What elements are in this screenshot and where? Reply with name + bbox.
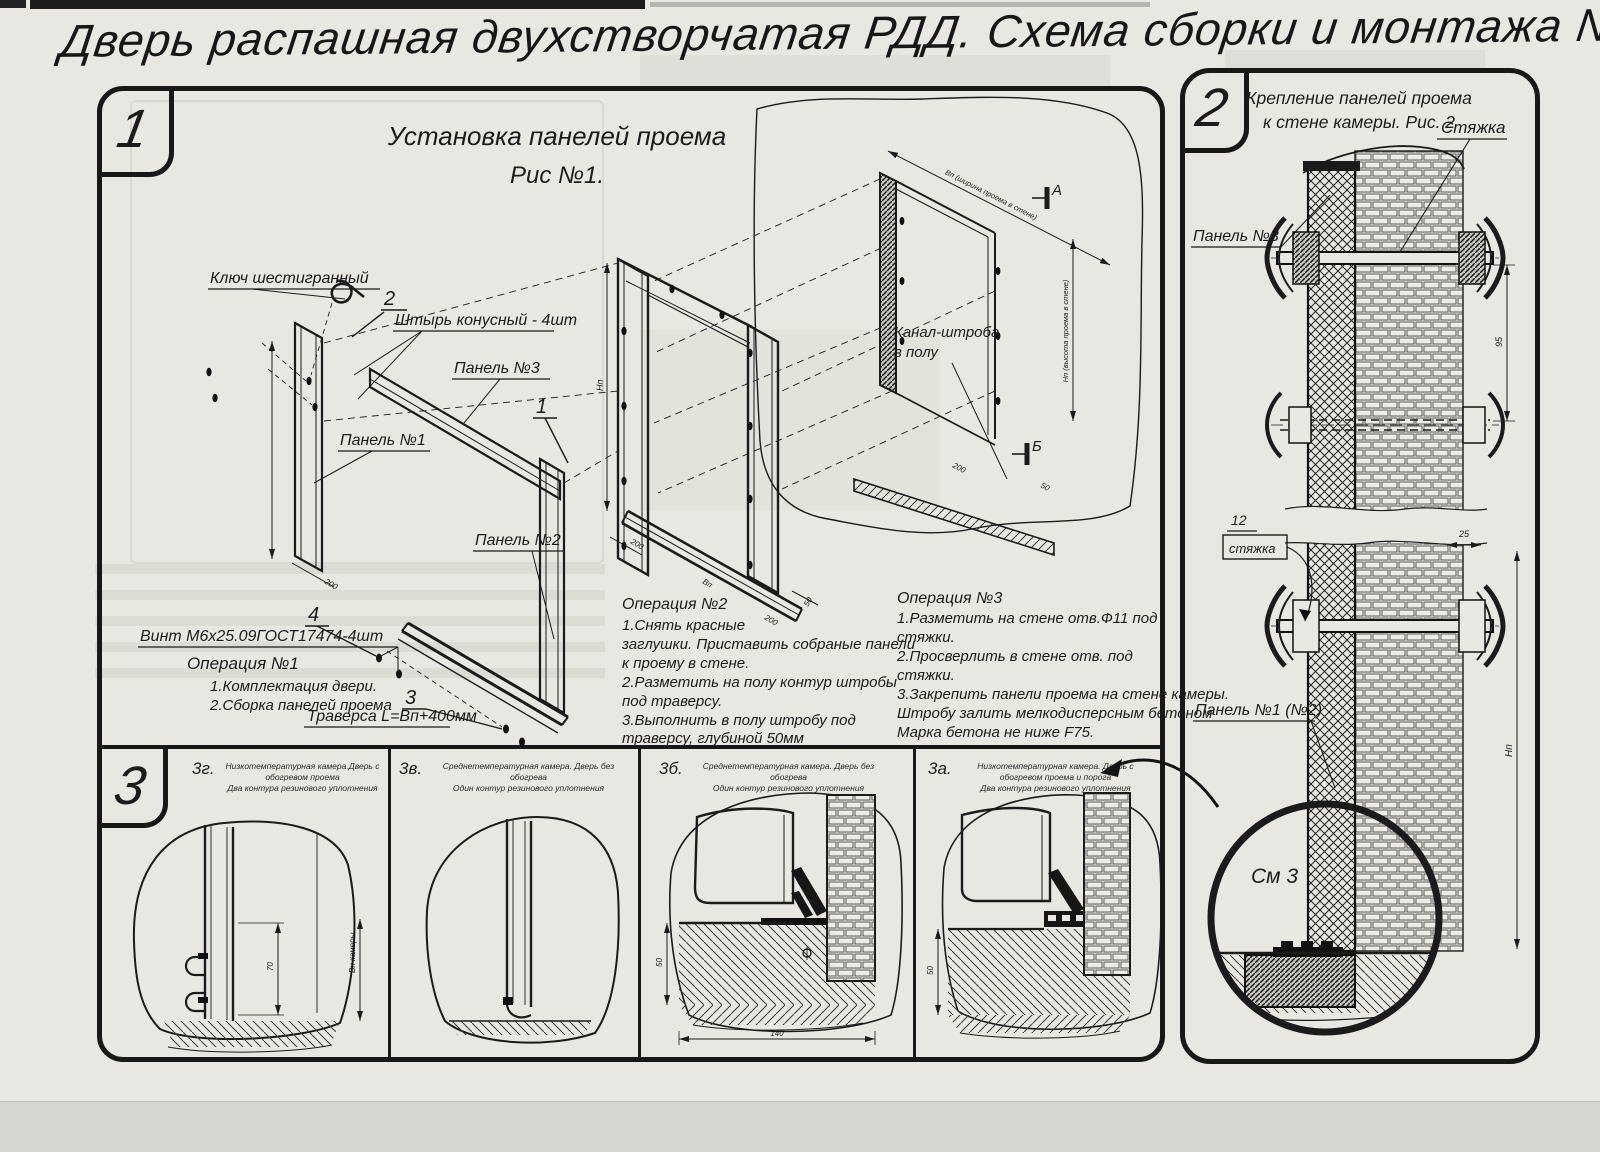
detail-arrow xyxy=(1090,735,1230,830)
scan-bottom-band xyxy=(0,1101,1600,1152)
detail-drawing-3v xyxy=(391,753,638,1053)
balloon-3: 3 xyxy=(405,687,416,709)
dim-bp: Вп xyxy=(701,577,714,590)
dim-200-a: 200 xyxy=(628,536,645,551)
channel-label-2: в полу xyxy=(894,344,940,361)
panel-3-label: Панель №3 xyxy=(454,360,540,377)
svg-text:заглушки. Приставить собраные: заглушки. Приставить собраные панели xyxy=(621,636,916,653)
position-12: 12 xyxy=(1231,512,1247,528)
panel-1-label: Панель №1 xyxy=(340,432,426,449)
see-3-label: См 3 xyxy=(1251,865,1298,888)
section-1-3-frame: 1 3 Установка панелей проема Рис №1. xyxy=(97,86,1165,1062)
balloon-4: 4 xyxy=(308,604,319,626)
dim-25: 25 xyxy=(1458,529,1470,539)
dim-200-b: 200 xyxy=(762,612,779,627)
dim-95: 95 xyxy=(1494,336,1504,347)
panel-assembly-group: 200 xyxy=(206,281,568,747)
dim-vn-kamery: Вн камеры xyxy=(348,932,357,973)
balloon-1: 1 xyxy=(536,396,547,418)
dim-70: 70 xyxy=(266,962,275,971)
wall-opening-group: Вп (ширина проема в стене) Нп (высота пр… xyxy=(754,97,1142,555)
operation-2-title: Операция №2 xyxy=(622,596,727,613)
svg-text:под траверсу.: под траверсу. xyxy=(622,693,722,710)
figure-1-subheading: Рис №1. xyxy=(510,162,604,189)
dim-np: Нп xyxy=(595,380,605,391)
svg-text:траверсу, глубиной 50мм: траверсу, глубиной 50мм xyxy=(622,730,804,747)
assembly-dim-lines xyxy=(272,341,334,587)
dim-50-b: 50 xyxy=(1039,481,1052,493)
svg-text:2.Просверлить в стене отв. по: 2.Просверлить в стене отв. под xyxy=(896,648,1133,665)
screw-label: Винт М6х25.09ГОСТ17474-4шт xyxy=(140,628,383,645)
panel-3-label: Панель №3 xyxy=(1193,228,1279,245)
wall-break xyxy=(1285,506,1487,544)
dim-200-left: 200 xyxy=(322,576,339,591)
operation-1-title: Операция №1 xyxy=(187,654,299,673)
svg-text:Марка бетона не ниже F75.: Марка бетона не ниже F75. xyxy=(897,724,1094,741)
dim-opening-height: Нп (высота проема в стене) xyxy=(1061,279,1070,382)
svg-text:3.Выполнить в полу штробу под: 3.Выполнить в полу штробу под xyxy=(622,712,856,729)
detail-panel-3b: 3б. Среднетемпературная камера. Дверь бе… xyxy=(641,753,913,1053)
tie-label: Стяжка xyxy=(1441,118,1506,137)
brick-wall-column xyxy=(1355,151,1463,951)
dim-200-d: 200 xyxy=(950,460,967,475)
svg-text:1.Разметить на стене отв.Ф11 п: 1.Разметить на стене отв.Ф11 под xyxy=(897,610,1157,627)
balloon-2: 2 xyxy=(383,288,395,310)
detail-panel-3g: 3г. Низкотемпературная камера.Дверь с об… xyxy=(102,753,388,1053)
brick-wall xyxy=(827,795,875,981)
scan-corner-artifact xyxy=(0,0,26,8)
operation-3-title: Операция №3 xyxy=(897,590,1002,607)
door-bracket xyxy=(1048,869,1084,914)
scan-edge-artifact xyxy=(30,0,645,9)
svg-text:стяжки.: стяжки. xyxy=(897,667,955,684)
svg-text:стяжки.: стяжки. xyxy=(897,629,955,646)
panel-1-bar xyxy=(295,323,322,571)
wall-outline xyxy=(754,97,1142,533)
section-marker-b: Б xyxy=(1012,438,1042,465)
dim-50: 50 xyxy=(655,958,664,967)
frame-dim-lines xyxy=(607,263,818,605)
section-2-frame: 2 Крепление панелей проема к стене камер… xyxy=(1180,68,1540,1064)
detail-drawing-3b: 50 140 xyxy=(641,753,913,1053)
channel-label-1: Канал-штроба xyxy=(894,324,999,341)
panel-strip xyxy=(1308,169,1355,951)
detail-drawing-3g: 70 Вн камеры xyxy=(102,753,388,1053)
dim-np: Нп xyxy=(1504,744,1515,757)
svg-text:Б: Б xyxy=(1032,438,1042,455)
detail-panel-3v: 3в. Среднетемпературная камера. Дверь бе… xyxy=(391,753,638,1053)
assembly-labels: Ключ шестигранный 2 Штырь конусный - 4шт… xyxy=(138,270,577,729)
svg-text:1.Снять красные: 1.Снять красные xyxy=(622,617,745,634)
figure-2-drawing: 95 25 Нп Стяжка П xyxy=(1185,73,1525,1049)
panel-1-2-label: Панель №1 (№2) xyxy=(1195,702,1322,719)
dim-140: 140 xyxy=(770,1029,784,1038)
section-marker-a: А xyxy=(1032,182,1062,209)
pin-label: Штырь конусный - 4шт xyxy=(395,312,577,329)
drawing-title: Дверь распашная двухстворчатая РДД. Схем… xyxy=(57,0,1576,68)
svg-text:Штробу залить мелкодисперсным: Штробу залить мелкодисперсным бетоном xyxy=(897,705,1212,722)
figure-1-heading: Установка панелей проема xyxy=(387,121,726,151)
svg-text:А: А xyxy=(1051,182,1062,199)
wall-pins xyxy=(900,217,1001,405)
floor-channel-strip xyxy=(854,479,1054,555)
svg-text:к проему в стене.: к проему в стене. xyxy=(622,655,749,672)
hex-key-label: Ключ шестигранный xyxy=(210,270,369,287)
traverse-label: Траверса L=Вп+400мм xyxy=(307,708,477,725)
door-frame-group: Нп 200 Вп 200 50 xyxy=(595,259,818,628)
dim-50: 50 xyxy=(926,966,935,975)
operation-1-line-1: 1.Комплектация двери. xyxy=(210,678,377,695)
panel-2-label: Панель №2 xyxy=(475,532,561,549)
position-12-name: стяжка xyxy=(1229,541,1275,556)
figure-1-drawing: Установка панелей проема Рис №1. xyxy=(102,91,1160,745)
svg-text:2.Разметить на полу контур штр: 2.Разметить на полу контур штробы xyxy=(621,674,897,691)
